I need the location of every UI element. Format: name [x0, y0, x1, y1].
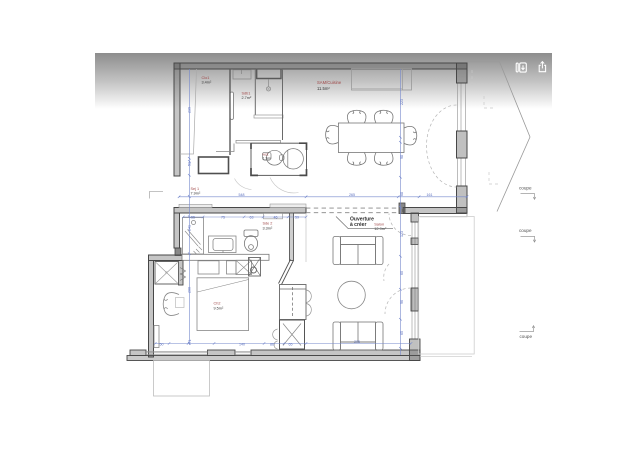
svg-text:60: 60 — [400, 271, 404, 275]
svg-text:98: 98 — [400, 155, 404, 159]
svg-text:50: 50 — [160, 342, 164, 346]
svg-text:9.5m²: 9.5m² — [214, 306, 224, 310]
svg-text:à créer: à créer — [350, 222, 366, 228]
svg-text:1.3m²: 1.3m² — [263, 157, 273, 161]
svg-text:65: 65 — [289, 342, 293, 346]
svg-text:86: 86 — [270, 342, 274, 346]
svg-text:548: 548 — [239, 193, 245, 197]
svg-text:55: 55 — [191, 215, 195, 219]
svg-text:Sdb1: Sdb1 — [242, 92, 251, 96]
svg-text:68: 68 — [400, 192, 404, 196]
svg-text:coupe: coupe — [520, 334, 533, 339]
svg-text:96: 96 — [400, 300, 404, 304]
svg-text:239: 239 — [188, 107, 192, 113]
svg-text:205: 205 — [354, 340, 360, 344]
svg-text:75: 75 — [221, 215, 225, 219]
svg-text:Ch2: Ch2 — [214, 302, 221, 306]
svg-text:46: 46 — [274, 215, 278, 219]
svg-text:Sde 2: Sde 2 — [263, 222, 273, 226]
svg-text:265: 265 — [349, 193, 355, 197]
svg-text:59: 59 — [295, 215, 299, 219]
svg-text:coupe: coupe — [519, 186, 532, 191]
svg-text:11.5m²: 11.5m² — [317, 86, 330, 91]
svg-text:2.7m²: 2.7m² — [242, 96, 252, 100]
svg-text:161: 161 — [427, 193, 433, 197]
svg-text:223: 223 — [400, 99, 404, 105]
svg-text:200: 200 — [188, 287, 192, 293]
svg-text:Sej 1: Sej 1 — [191, 187, 200, 191]
svg-text:241: 241 — [188, 225, 192, 231]
svg-text:123: 123 — [400, 231, 404, 237]
svg-text:coupe: coupe — [519, 228, 532, 233]
svg-text:7.9m²: 7.9m² — [191, 192, 201, 196]
svg-text:63: 63 — [250, 215, 254, 219]
svg-text:65: 65 — [400, 331, 404, 335]
svg-text:3.3m²: 3.3m² — [263, 226, 273, 230]
svg-text:71: 71 — [188, 340, 192, 344]
svg-text:Clo1: Clo1 — [202, 76, 210, 80]
svg-text:140: 140 — [239, 342, 245, 346]
svg-text:SAM/Cuisine: SAM/Cuisine — [317, 80, 342, 85]
svg-text:3.4m²: 3.4m² — [202, 81, 212, 85]
svg-text:53: 53 — [188, 162, 192, 166]
